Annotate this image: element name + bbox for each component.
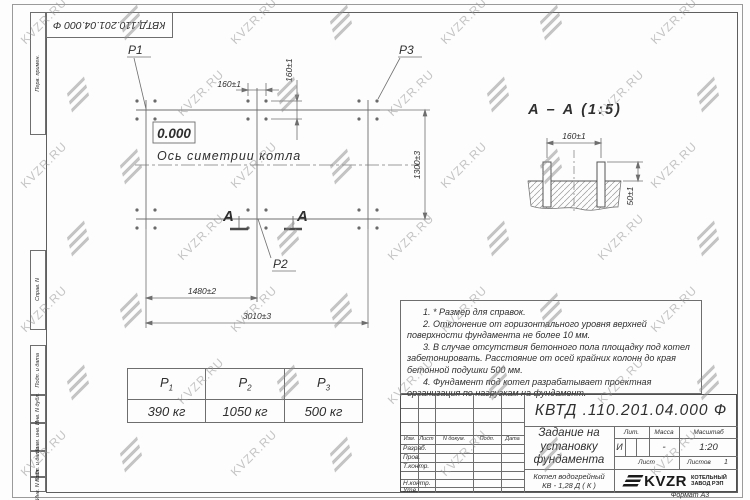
- section-a-a-drawing: А – А (1:5) 160±1 50±1: [480, 88, 745, 223]
- note-3: 3. В случае отсутствия бетонного пола пл…: [407, 342, 693, 377]
- tb-scale-value: 1:20: [679, 438, 738, 456]
- tb-sheet-label: Лист: [614, 456, 679, 469]
- tb-col-data: Дата: [501, 436, 524, 442]
- loads-table: P1 P2 P3 390 кг 1050 кг 500 кг: [127, 368, 363, 423]
- tb-sheets-label: Листов: [683, 456, 715, 469]
- margin-field-inv-podl: Инв. N подл.: [30, 477, 46, 492]
- load-point-p2-label: P2: [273, 257, 288, 271]
- tb-col-list: Лист: [418, 436, 435, 442]
- drawing-sheet: КВТД.110.201.04.000 Ф Перв. примен. Спра…: [0, 0, 750, 500]
- note-1: 1. * Размер для справок.: [407, 307, 693, 319]
- symmetry-axis-label: Ось симетрии котла: [157, 149, 301, 163]
- section-dim-50-label: 50±1: [625, 186, 635, 205]
- load-point-leaders: [127, 57, 422, 271]
- tb-sheets-value: 1: [719, 456, 733, 469]
- section-letter-left: А: [222, 208, 234, 225]
- note-2: 2. Отклонение от горизонтального уровня …: [407, 319, 693, 342]
- tb-col-izm: Изм.: [401, 436, 418, 442]
- title-block: Изм. Лист N докум. Подп. Дата Разраб. Пр…: [400, 394, 737, 492]
- format-label: Формат А3: [655, 492, 725, 499]
- section-letter-right: А: [296, 208, 308, 225]
- level-mark: 0.000: [157, 126, 191, 141]
- tb-col-podp: Подп.: [473, 436, 501, 442]
- load-point-p3-label: P3: [399, 43, 414, 57]
- tb-row-tkontr: Т.контр.: [403, 463, 429, 470]
- loads-header-p3: P3: [285, 369, 363, 400]
- concrete-pad-hatched: [528, 181, 621, 210]
- loads-header-p1: P1: [128, 369, 206, 400]
- loads-value-p1: 390 кг: [128, 400, 206, 423]
- loads-table-value-row: 390 кг 1050 кг 500 кг: [128, 400, 363, 423]
- tb-lit-label: Лит.: [614, 426, 649, 438]
- tb-row-nkontr: Н.контр.: [403, 480, 431, 487]
- section-dim-160-label: 160±1: [562, 131, 586, 141]
- loads-value-p2: 1050 кг: [206, 400, 285, 423]
- load-point-p1-label: P1: [128, 43, 143, 57]
- anchor-bolt-right: [597, 162, 605, 207]
- dim-1300: [380, 110, 430, 219]
- tb-scale-label: Масштаб: [679, 426, 738, 438]
- margin-field-sprav-n: Справ. N: [30, 250, 46, 330]
- dim-1480-label: 1480±2: [188, 286, 217, 296]
- loads-value-p3: 500 кг: [285, 400, 363, 423]
- margin-field-perv-primen: Перв. примен.: [30, 12, 46, 135]
- dim-160-horizontal: [236, 83, 279, 96]
- anchor-bolt-left: [543, 162, 551, 207]
- section-title: А – А (1:5): [527, 102, 622, 118]
- loads-table-header-row: P1 P2 P3: [128, 369, 363, 400]
- section-dim-50: [607, 162, 643, 181]
- kvzr-waves-icon: [622, 475, 644, 488]
- kvzr-logo-subtext: КОТЕЛЬНЫЙ ЗАВОД РЭП: [691, 475, 727, 488]
- tb-row-prov: Пров.: [403, 454, 420, 461]
- dim-1300-label: 1300±3: [412, 151, 422, 180]
- tb-col-ndokum: N докум.: [435, 436, 473, 442]
- loads-header-p2: P2: [206, 369, 285, 400]
- dim-160-vertical-label: 160±1: [284, 58, 294, 82]
- tb-row-utv: Утв.: [403, 487, 418, 494]
- tb-lit-value: И: [614, 438, 625, 456]
- margin-field-inv-dubl: Инв. N дубл.: [30, 395, 46, 423]
- tb-document-title: Задание на установку фундамента: [524, 426, 614, 469]
- dim-3010-label: 3010±3: [243, 311, 272, 321]
- kvzr-logo-text: KVZR: [644, 473, 687, 490]
- tb-row-razrab: Разраб.: [403, 445, 427, 452]
- dim-160-horizontal-label: 160±1: [217, 79, 241, 89]
- tb-manufacturer-logo: KVZR КОТЕЛЬНЫЙ ЗАВОД РЭП: [614, 469, 738, 493]
- foundation-plan-drawing: Ось симетрии котла 0.000 160±1 160±1: [55, 30, 470, 340]
- tb-mass-value: -: [649, 438, 679, 456]
- tb-doc-number: КВТД .110.201.04.000 Ф: [524, 395, 738, 426]
- tb-product-name: Котел водогрейный КВ - 1,28 Д ( К ): [524, 469, 614, 493]
- tb-mass-label: Масса: [649, 426, 679, 438]
- margin-field-podp-data-1: Подп. и дата: [30, 345, 46, 395]
- bolt-axis-lines: [136, 88, 380, 302]
- notes-block: 1. * Размер для справок. 2. Отклонение о…: [400, 300, 702, 394]
